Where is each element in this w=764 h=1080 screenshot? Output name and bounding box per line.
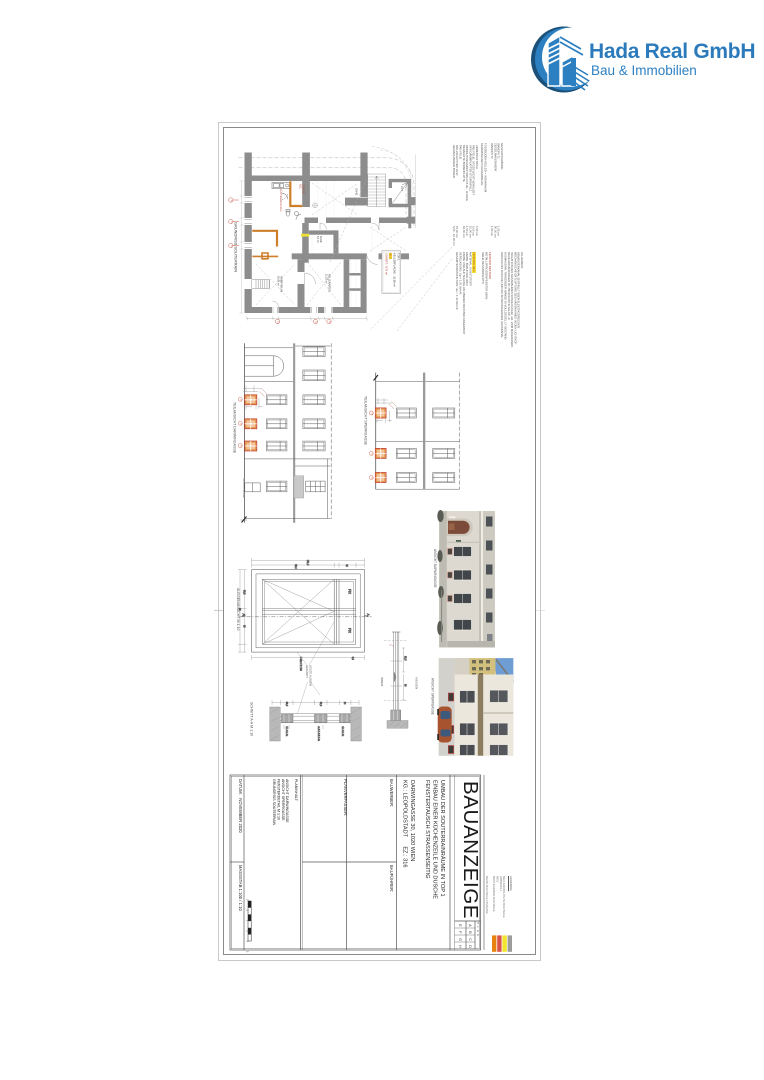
svg-text:H: H [458, 945, 462, 948]
svg-text:16: 16 [239, 399, 241, 402]
svg-text:tl.1-8.1-fa: tl.1-8.1-fa [341, 727, 344, 737]
svg-text:P L A N.: P L A N. [476, 923, 480, 939]
svg-text:98,3: 98,3 [294, 564, 296, 569]
svg-text:14: 14 [239, 445, 241, 448]
svg-text:32: 32 [345, 564, 347, 567]
svg-text:151,3: 151,3 [306, 560, 308, 566]
svg-text:LIFT: LIFT [400, 186, 404, 192]
svg-text:F: F [458, 931, 462, 934]
svg-text:re.8.1-8.8.1-fa: re.8.1-8.8.1-fa [317, 727, 320, 742]
svg-text:32,3: 32,3 [319, 702, 321, 707]
svg-text:98,3: 98,3 [285, 702, 287, 707]
svg-text:E: E [458, 924, 462, 927]
svg-text:9,8: 9,8 [351, 657, 353, 661]
svg-text:11: 11 [370, 477, 372, 480]
svg-text:FIX: FIX [348, 628, 352, 634]
svg-text:A: A [468, 924, 472, 927]
svg-text:24: 24 [343, 702, 345, 705]
svg-text:15: 15 [239, 423, 241, 426]
svg-text:B: B [468, 931, 472, 934]
svg-text:56,5: 56,5 [404, 656, 406, 661]
svg-text:tl.1-8.1-fa: tl.1-8.1-fa [285, 727, 288, 737]
svg-text:FIX: FIX [348, 589, 352, 595]
svg-text:12: 12 [370, 453, 372, 456]
svg-text:F-Mst / N: BG: F-Mst / N: BG [299, 657, 302, 671]
svg-text:39: 39 [404, 684, 406, 687]
svg-text:D: D [468, 945, 472, 948]
svg-text:G: G [458, 938, 462, 941]
svg-text:C: C [468, 938, 472, 941]
svg-text:56,5: 56,5 [243, 590, 245, 595]
svg-text:13: 13 [370, 413, 372, 416]
